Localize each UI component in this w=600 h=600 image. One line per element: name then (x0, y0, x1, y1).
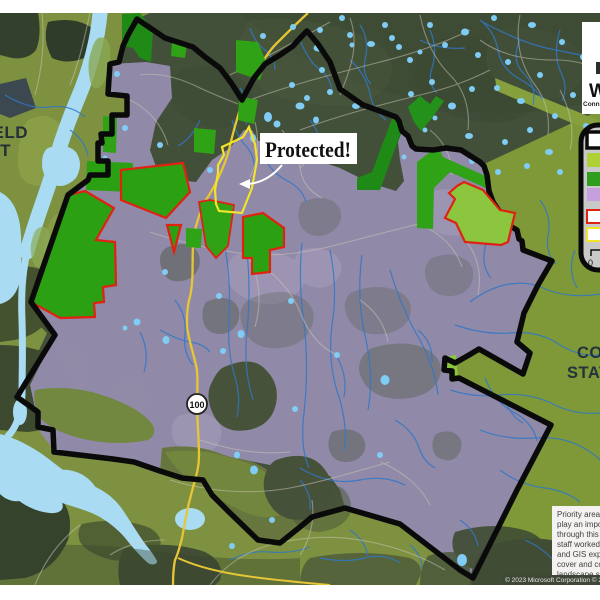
svg-text:0: 0 (588, 258, 593, 268)
svg-text:cover and connecti: cover and connecti (557, 560, 600, 569)
svg-text:landscape scale pri: landscape scale pri (557, 570, 600, 579)
svg-text:and GIS experts to: and GIS experts to (557, 550, 600, 559)
svg-text:CO: CO (577, 344, 600, 362)
svg-text:Priority areas for co: Priority areas for co (557, 510, 600, 519)
svg-text:100: 100 (189, 400, 204, 410)
svg-text:Conn: Conn (583, 101, 600, 108)
svg-text:play an important r: play an important r (557, 520, 600, 529)
svg-text:STAT: STAT (567, 364, 600, 382)
svg-text:ELD: ELD (0, 123, 28, 142)
svg-text:Protected!: Protected! (265, 137, 351, 162)
svg-text:W: W (589, 81, 600, 102)
svg-text:ST: ST (0, 141, 11, 160)
svg-text:staff worked with la: staff worked with la (557, 540, 600, 549)
svg-text:through this proces: through this proces (557, 530, 600, 539)
